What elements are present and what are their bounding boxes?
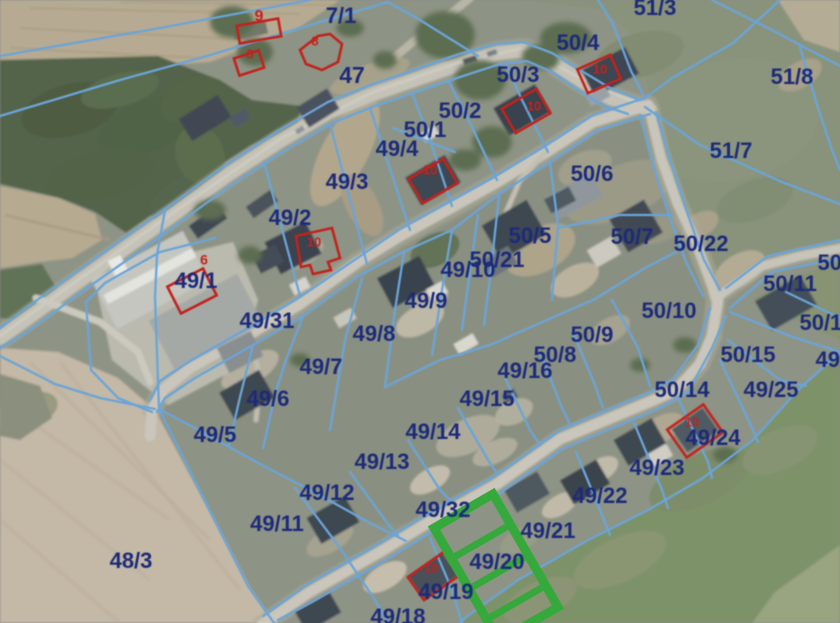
svg-text:49/8: 49/8	[353, 321, 396, 346]
svg-text:10: 10	[424, 560, 438, 575]
svg-text:10: 10	[307, 234, 321, 249]
svg-text:50/3: 50/3	[497, 62, 540, 87]
svg-text:9: 9	[255, 8, 264, 25]
svg-text:49/12: 49/12	[299, 480, 354, 505]
svg-text:10: 10	[527, 98, 541, 113]
svg-text:8: 8	[246, 46, 253, 61]
svg-text:49/22: 49/22	[572, 483, 627, 508]
svg-text:50/7: 50/7	[611, 224, 654, 249]
svg-text:50/9: 50/9	[571, 322, 614, 347]
svg-text:49/24: 49/24	[685, 425, 741, 450]
svg-text:8: 8	[311, 33, 318, 48]
svg-text:10: 10	[593, 61, 607, 76]
svg-text:49/20: 49/20	[469, 549, 524, 574]
svg-text:49/10: 49/10	[440, 257, 495, 282]
svg-text:49/14: 49/14	[405, 419, 461, 444]
svg-text:49/26: 49/26	[815, 347, 840, 372]
svg-text:49/5: 49/5	[194, 422, 237, 447]
svg-text:7/1: 7/1	[326, 3, 357, 28]
svg-text:50/14: 50/14	[654, 377, 710, 402]
svg-text:51/7: 51/7	[710, 138, 753, 163]
svg-text:51/8: 51/8	[771, 64, 814, 89]
svg-text:49/1: 49/1	[175, 268, 218, 293]
svg-text:50/6: 50/6	[571, 161, 614, 186]
svg-text:51/3: 51/3	[634, 0, 677, 20]
svg-text:50/10: 50/10	[641, 298, 696, 323]
svg-text:49/2: 49/2	[269, 205, 312, 230]
svg-text:49/21: 49/21	[520, 518, 575, 543]
svg-text:49/25: 49/25	[743, 377, 798, 402]
svg-text:49/9: 49/9	[405, 288, 448, 313]
svg-text:6: 6	[200, 252, 208, 268]
svg-text:50/5: 50/5	[509, 223, 552, 248]
svg-text:50/15: 50/15	[720, 342, 775, 367]
svg-text:10: 10	[423, 162, 437, 177]
svg-text:49/6: 49/6	[247, 386, 290, 411]
svg-text:49/15: 49/15	[459, 386, 514, 411]
svg-text:49/3: 49/3	[326, 169, 369, 194]
svg-text:49/18: 49/18	[370, 604, 425, 623]
svg-text:50/4: 50/4	[557, 30, 601, 55]
svg-text:50/16: 50/16	[799, 310, 840, 335]
svg-text:50/11: 50/11	[763, 271, 817, 296]
svg-text:49/23: 49/23	[629, 455, 684, 480]
svg-text:49/11: 49/11	[250, 511, 304, 536]
svg-text:49/7: 49/7	[300, 354, 343, 379]
svg-text:48/3: 48/3	[110, 548, 153, 573]
svg-text:47: 47	[339, 62, 365, 88]
svg-text:49/31: 49/31	[239, 308, 294, 333]
svg-text:49/32: 49/32	[415, 497, 470, 522]
svg-text:49/13: 49/13	[354, 449, 409, 474]
svg-text:49/16: 49/16	[497, 358, 552, 383]
svg-text:49/4: 49/4	[376, 136, 420, 161]
svg-text:49/19: 49/19	[418, 579, 473, 604]
svg-text:50/12: 50/12	[817, 250, 840, 275]
svg-text:50/22: 50/22	[673, 231, 728, 256]
